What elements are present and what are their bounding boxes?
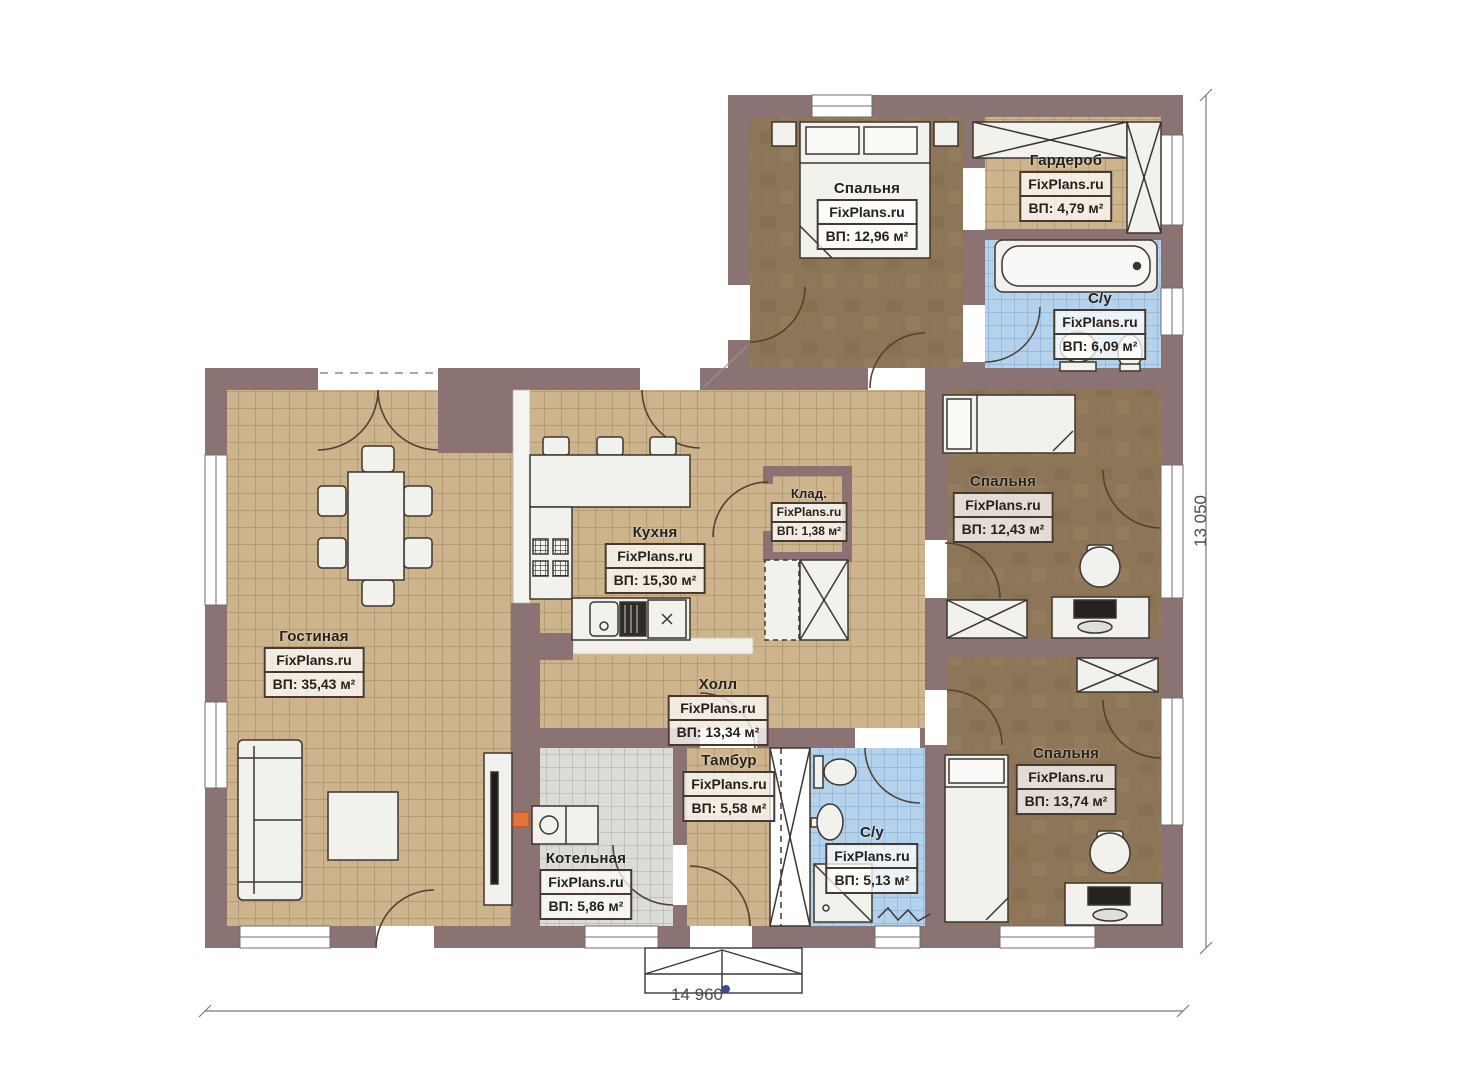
brand-box: FixPlans.ru <box>682 771 775 797</box>
room-name: С/у <box>1053 290 1146 307</box>
brand-box: FixPlans.ru <box>825 843 918 869</box>
floor-plan: Спальня FixPlans.ru ВП: 12,96 м² Гардеро… <box>0 0 1473 1080</box>
room-label-living: Гостиная FixPlans.ru ВП: 35,43 м² <box>264 628 365 698</box>
area-box: ВП: 5,86 м² <box>539 893 632 919</box>
room-name: Холл <box>668 676 769 693</box>
room-label-hall: Холл FixPlans.ru ВП: 13,34 м² <box>668 676 769 746</box>
area-box: ВП: 5,13 м² <box>825 867 918 893</box>
single-bed-icon <box>945 755 1008 922</box>
area-box: ВП: 13,74 м² <box>1016 788 1117 814</box>
room-name: Спальня <box>817 180 918 197</box>
area-box: ВП: 4,79 м² <box>1019 195 1112 221</box>
bathtub-icon <box>995 240 1157 292</box>
room-label-storage: Клад. FixPlans.ru ВП: 1,38 м² <box>771 486 848 542</box>
area-box: ВП: 5,58 м² <box>682 795 775 821</box>
boiler-unit-icon <box>532 806 598 844</box>
desk-icon <box>1065 883 1162 925</box>
coffee-table-icon <box>328 792 398 860</box>
brand-box: FixPlans.ru <box>605 543 706 569</box>
area-box: ВП: 12,43 м² <box>953 516 1054 542</box>
brand-box: FixPlans.ru <box>1016 764 1117 790</box>
hall-wardrobe-icon <box>800 560 848 640</box>
shaft-icon <box>770 748 810 926</box>
room-label-wardrobe: Гардероб FixPlans.ru ВП: 4,79 м² <box>1019 152 1112 222</box>
cabinet-divider <box>513 390 530 603</box>
kitchen-sink-icon <box>590 600 686 638</box>
room-label-kitchen: Кухня FixPlans.ru ВП: 15,30 м² <box>605 524 706 594</box>
dimension-height-label: 13 050 <box>1191 475 1211 567</box>
single-bed-icon <box>943 395 1075 453</box>
desk-icon <box>1052 597 1149 638</box>
room-name: Кухня <box>605 524 706 541</box>
boiler-flue-marker <box>513 812 529 827</box>
brand-box: FixPlans.ru <box>539 869 632 895</box>
wardrobe-icon <box>1077 658 1158 692</box>
tv-panel-icon <box>484 753 512 905</box>
area-box: ВП: 1,38 м² <box>771 521 848 542</box>
room-name: Котельная <box>539 850 632 867</box>
area-box: ВП: 35,43 м² <box>264 671 365 697</box>
brand-box: FixPlans.ru <box>771 502 848 523</box>
brand-box: FixPlans.ru <box>264 647 365 673</box>
area-box: ВП: 6,09 м² <box>1053 333 1146 359</box>
brand-box: FixPlans.ru <box>668 695 769 721</box>
dimension-width-label: 14 960 <box>652 985 742 1005</box>
room-name: С/у <box>825 824 918 841</box>
area-box: ВП: 13,34 м² <box>668 719 769 745</box>
wardrobe-icon <box>947 600 1027 638</box>
sofa-icon <box>238 740 302 900</box>
room-label-bedroom-1: Спальня FixPlans.ru ВП: 12,96 м² <box>817 180 918 250</box>
brand-box: FixPlans.ru <box>817 199 918 225</box>
brand-box: FixPlans.ru <box>1019 171 1112 197</box>
floor-plan-drawing <box>0 0 1473 1080</box>
area-box: ВП: 15,30 м² <box>605 567 706 593</box>
room-label-vestibule: Тамбур FixPlans.ru ВП: 5,58 м² <box>682 752 775 822</box>
hall-cabinet-icon <box>765 560 799 640</box>
brand-box: FixPlans.ru <box>1053 309 1146 335</box>
area-box: ВП: 12,96 м² <box>817 223 918 249</box>
room-name: Гардероб <box>1019 152 1112 169</box>
room-label-bedroom-2: Спальня FixPlans.ru ВП: 12,43 м² <box>953 473 1054 543</box>
room-label-boiler: Котельная FixPlans.ru ВП: 5,86 м² <box>539 850 632 920</box>
room-label-bedroom-3: Спальня FixPlans.ru ВП: 13,74 м² <box>1016 745 1117 815</box>
room-name: Тамбур <box>682 752 775 769</box>
room-name: Спальня <box>953 473 1054 490</box>
room-name: Клад. <box>771 486 848 501</box>
toilet-icon <box>814 756 856 788</box>
room-name: Гостиная <box>264 628 365 645</box>
room-label-bathroom-2: С/у FixPlans.ru ВП: 5,13 м² <box>825 824 918 894</box>
room-label-bathroom-1: С/у FixPlans.ru ВП: 6,09 м² <box>1053 290 1146 360</box>
brand-box: FixPlans.ru <box>953 492 1054 518</box>
kitchen-island-icon <box>530 437 690 507</box>
room-name: Спальня <box>1016 745 1117 762</box>
